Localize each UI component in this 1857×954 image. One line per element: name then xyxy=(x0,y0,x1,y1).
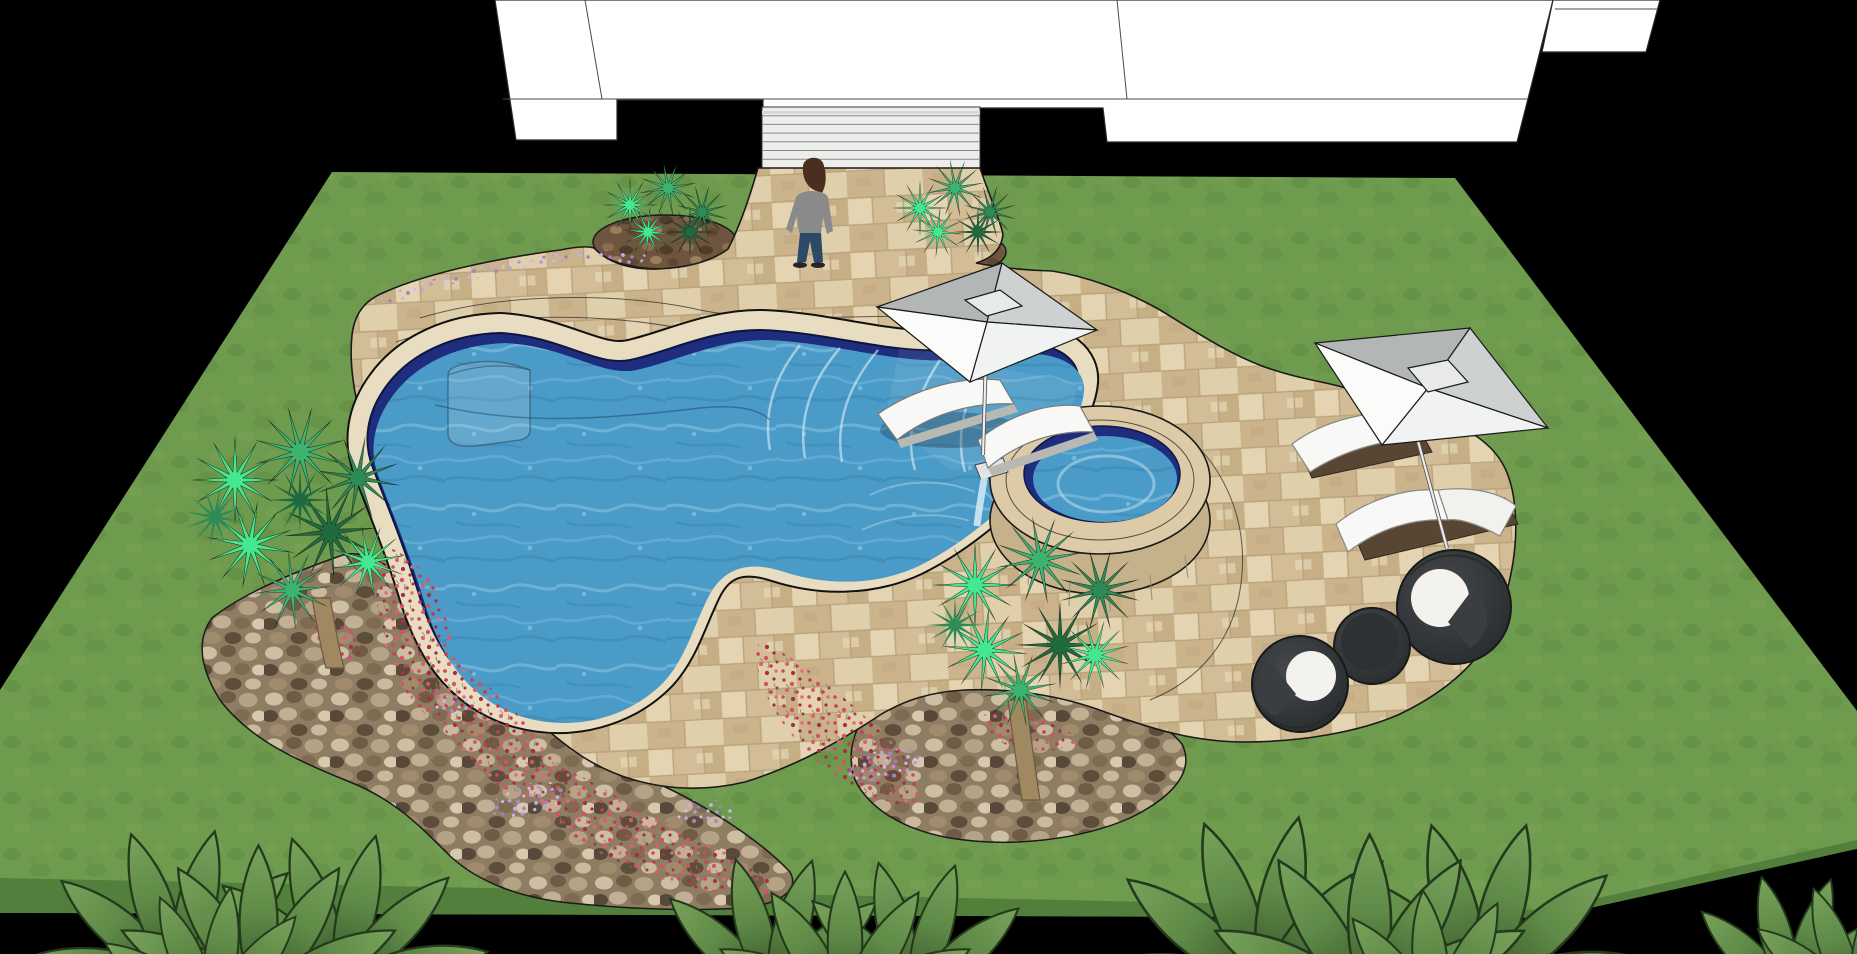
wicker-chair-1 xyxy=(1397,550,1511,664)
person-shoe-right xyxy=(811,262,825,268)
step-shading xyxy=(762,111,980,114)
pool-landscape-render xyxy=(0,0,1857,954)
wicker-ottoman-top xyxy=(1341,613,1399,671)
underwater-bench xyxy=(448,362,530,447)
house-wing-block xyxy=(1542,0,1660,52)
person-shoe-left xyxy=(793,262,807,268)
render-viewport xyxy=(0,0,1857,954)
wicker-chair-2 xyxy=(1252,636,1348,732)
entry-steps xyxy=(762,107,980,168)
